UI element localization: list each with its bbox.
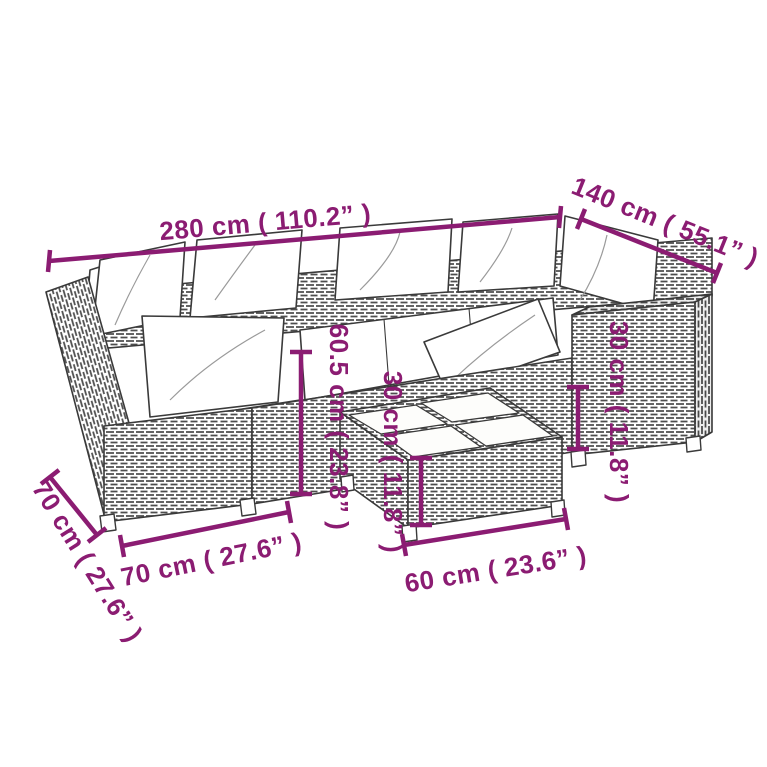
dimension-table-height-label: 30 cm ( 11.8” ) xyxy=(378,371,408,553)
dimension-table-width-label: 60 cm ( 23.6” ) xyxy=(402,540,588,598)
dimension-seat-width-label: 70 cm ( 27.6” ) xyxy=(118,526,304,592)
right-armrest xyxy=(572,294,712,455)
dimension-back-height-label: 60.5 cm ( 23.8” ) xyxy=(324,324,354,531)
wing-front-panel xyxy=(104,408,252,522)
dimension-armrest-height-label: 30 cm ( 11.8” ) xyxy=(604,321,634,503)
wing-pillow xyxy=(142,316,284,417)
diagram-canvas: 280 cm ( 110.2” ) 140 cm ( 55.1” ) 60.5 … xyxy=(0,0,767,767)
dimension-diagram: 280 cm ( 110.2” ) 140 cm ( 55.1” ) 60.5 … xyxy=(0,0,767,767)
